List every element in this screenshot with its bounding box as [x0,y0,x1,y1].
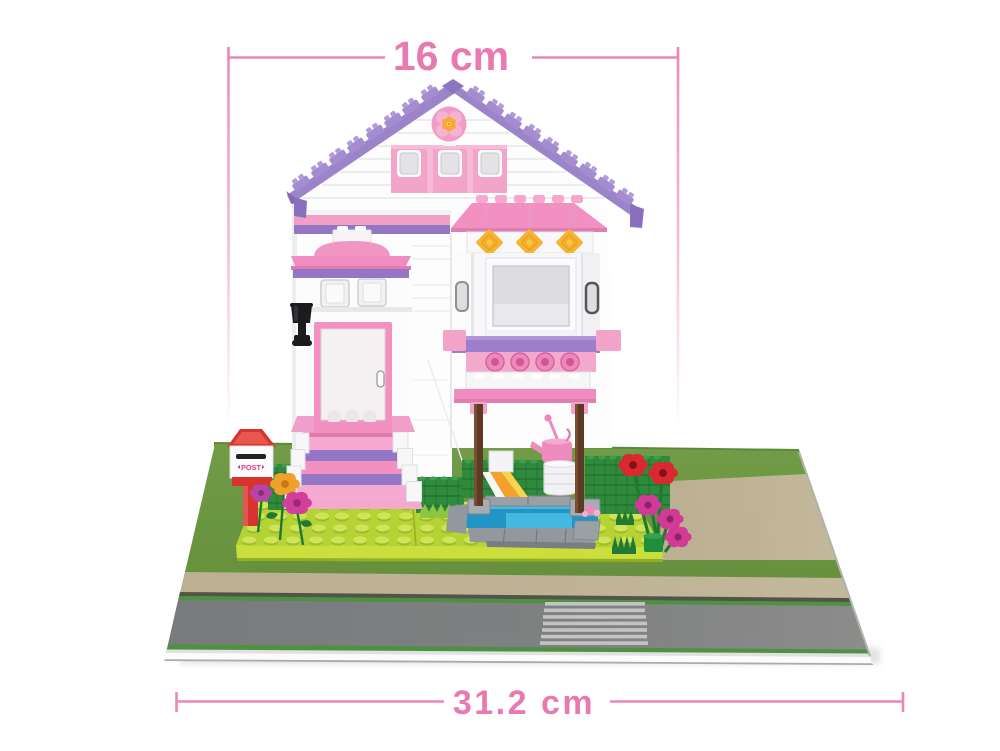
svg-text:POST: POST [241,463,262,472]
svg-text:16 cm: 16 cm [393,33,509,79]
svg-text:31.2 cm: 31.2 cm [453,684,595,722]
